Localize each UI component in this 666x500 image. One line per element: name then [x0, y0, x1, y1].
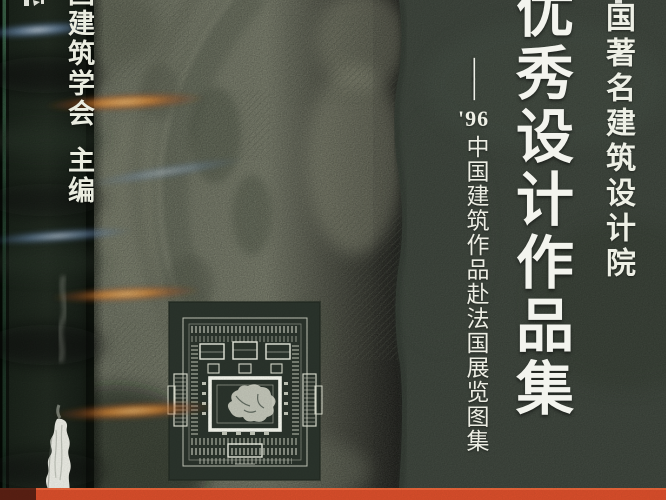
subtitle-dash: ——: [465, 58, 487, 98]
subtitle-text: 中国建筑作品赴法国展览图集: [464, 135, 487, 454]
main-title: 优秀设计作品集: [511, 0, 569, 421]
spine-editor-role: 主编: [65, 146, 92, 206]
subtitle-year: '96: [458, 106, 489, 132]
book-cover: 国建筑学会 主编 优秀设计作品集 国著名建筑设计院 —— '96 中国建筑作品赴…: [0, 0, 666, 500]
institute-title: 国著名建筑设计院: [602, 2, 632, 282]
spine-editor-org: 国建筑学会: [65, 0, 92, 129]
